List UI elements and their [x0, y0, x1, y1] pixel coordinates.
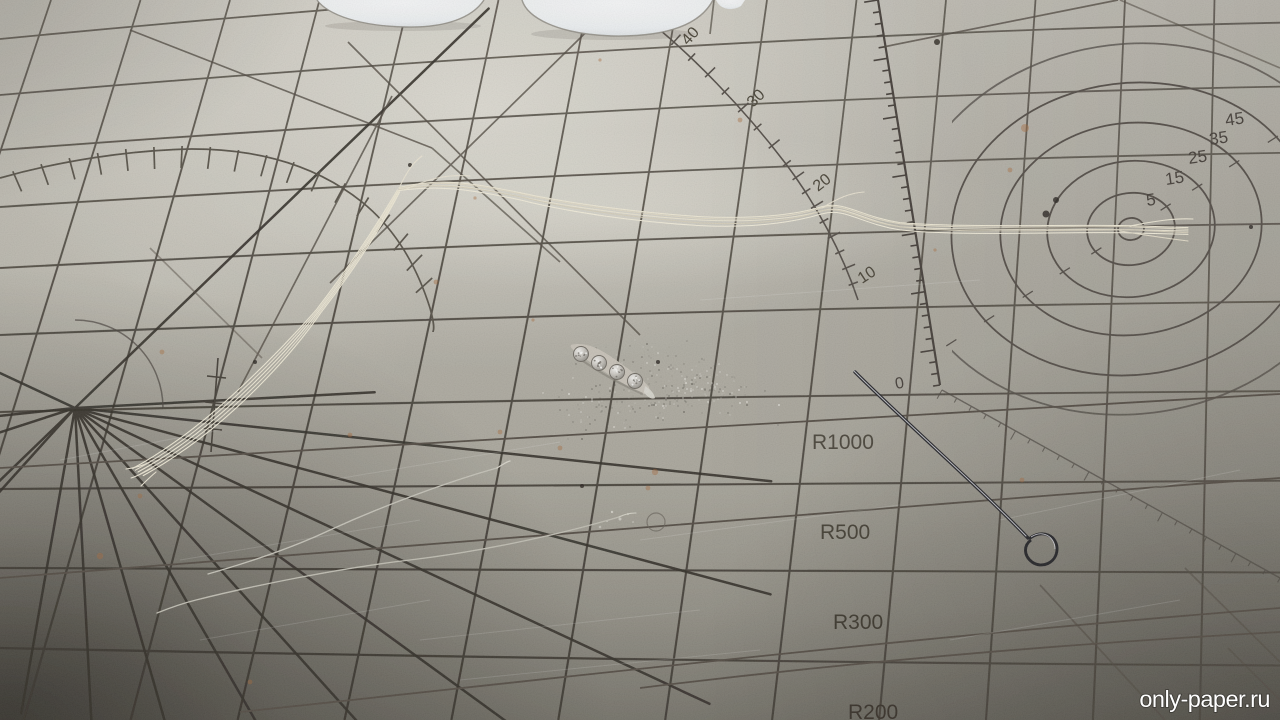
svg-text:only-paper.ru: only-paper.ru — [1139, 686, 1270, 712]
